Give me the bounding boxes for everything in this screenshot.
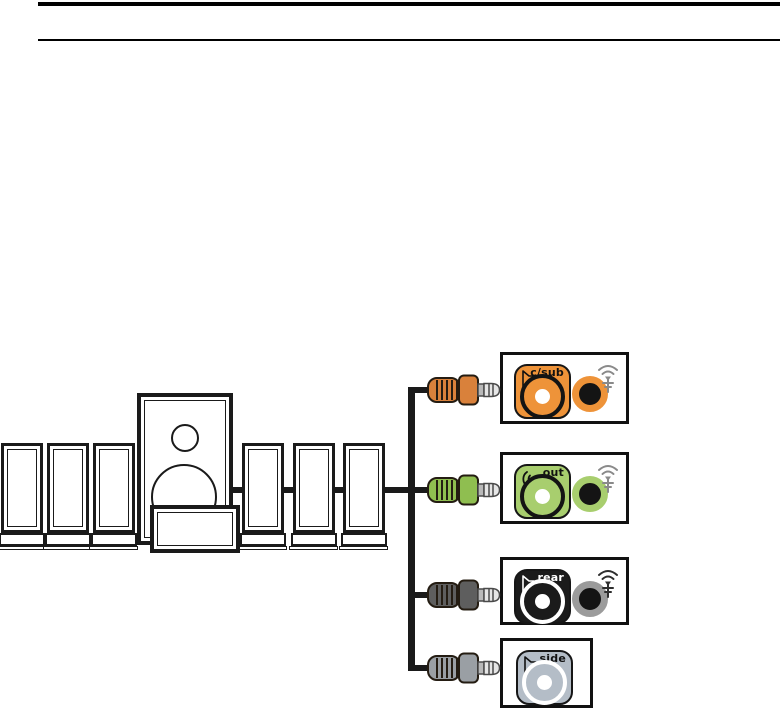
tweeter-circle xyxy=(171,424,199,452)
out-jack-socket: out xyxy=(514,464,571,519)
satellite-speaker xyxy=(293,443,335,551)
jack-panel-csub: c/sub xyxy=(500,352,629,424)
jack-panel-side: side xyxy=(500,638,593,708)
side-jack-hole xyxy=(522,660,567,705)
csub-jack-socket: c/sub xyxy=(514,364,571,419)
satellite-speaker xyxy=(242,443,284,551)
antenna-icon xyxy=(597,461,619,493)
header-rule-bottom xyxy=(38,39,780,41)
rear-jack-hole xyxy=(520,579,565,624)
audio-plug-csub xyxy=(426,373,502,407)
header-rule-top xyxy=(38,2,780,6)
cable-trunk xyxy=(408,387,415,671)
audio-plug-side xyxy=(426,651,502,685)
out-jack-hole xyxy=(520,474,565,519)
satellite-speaker xyxy=(343,443,385,551)
side-jack-socket: side xyxy=(516,650,573,705)
satellite-speaker xyxy=(47,443,89,551)
center-speaker xyxy=(150,505,240,553)
jack-panel-out: out xyxy=(500,452,629,524)
jack-panel-rear: rear xyxy=(500,557,629,625)
antenna-icon xyxy=(597,566,619,598)
audio-plug-rear xyxy=(426,578,502,612)
satellite-speaker xyxy=(93,443,135,551)
antenna-icon xyxy=(597,361,619,393)
rear-jack-socket: rear xyxy=(514,569,571,624)
audio-plug-out xyxy=(426,473,502,507)
csub-jack-hole xyxy=(520,374,565,419)
manual-page: c/sub out xyxy=(0,0,780,711)
satellite-speaker xyxy=(1,443,43,551)
